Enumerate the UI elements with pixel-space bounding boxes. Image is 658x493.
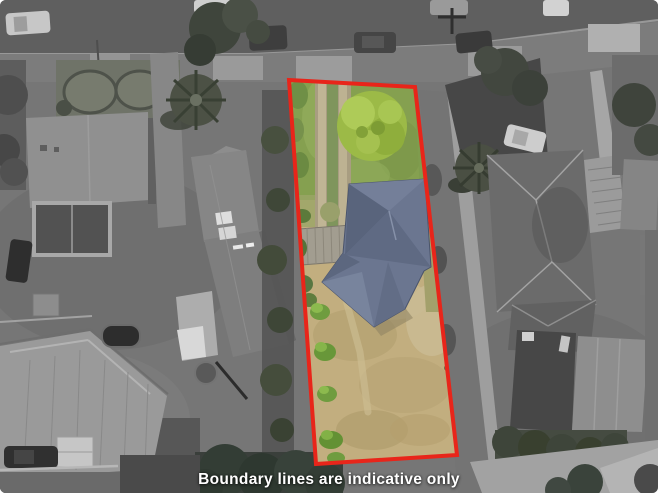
water-tank [195, 362, 217, 384]
neighbor-house-bottom-left-part [14, 450, 34, 464]
bottom-yard [0, 472, 140, 493]
right-driveway-strip-part [512, 70, 548, 106]
bottom-shadow [120, 455, 200, 493]
street-trees-part [246, 20, 270, 44]
right-bottom-block-part [645, 230, 658, 440]
backyard-bushes-part [311, 303, 323, 313]
vegetation-strip-left-part [270, 418, 294, 442]
neighbor-house-top-left-part [54, 147, 59, 152]
parked-cars-part [362, 36, 384, 48]
subject-property-part [359, 357, 451, 413]
front-tree [337, 91, 407, 161]
backyard-bushes-part [315, 342, 327, 352]
shed [33, 294, 59, 316]
front-tree-part [341, 96, 375, 130]
neighbor-house-right-part [532, 187, 588, 263]
palm-tree-right-part [474, 163, 484, 173]
right-bottom-block-part [522, 332, 534, 341]
left-edge-yard-part [0, 158, 28, 186]
skylight [218, 226, 237, 240]
boundary-disclaimer-text: Boundary lines are indicative only [198, 471, 460, 489]
carport-roof [588, 24, 640, 52]
neighbor-house-top-left-part [56, 100, 72, 116]
right-driveway-strip-part [474, 46, 502, 74]
garage-roof [620, 159, 658, 231]
driveway-tracks [315, 78, 351, 232]
vegetation-strip-left [257, 90, 294, 460]
front-tree-part [356, 126, 368, 138]
car-white [543, 0, 569, 16]
skylight [215, 211, 233, 225]
backyard-bushes-part [319, 386, 329, 394]
vegetation-strip-left-part [266, 188, 290, 212]
street-trees-part [184, 34, 216, 66]
road-top-part [296, 56, 352, 82]
subject-property-part [390, 414, 450, 446]
aerial-photo: Boundary lines are indicative only [0, 0, 658, 493]
neighbor-house-right-part [612, 83, 656, 127]
front-tree-part [371, 121, 385, 135]
neighbor-house-left-middle-part [177, 326, 206, 360]
scene-svg [0, 0, 658, 493]
road-top-part [213, 56, 263, 80]
light-roof [572, 336, 648, 432]
vegetation-strip-left-part [261, 126, 289, 154]
vegetation-strip-left-part [260, 364, 292, 396]
trampoline [102, 325, 140, 347]
car-white [5, 10, 50, 35]
parked-cars-part [14, 16, 28, 32]
neighbor-house-top-left-part [40, 145, 47, 151]
vegetation-strip-left-part [267, 307, 293, 333]
front-tree-part [378, 100, 402, 124]
car-gray [430, 0, 468, 15]
backyard-bushes-part [321, 430, 333, 440]
palm-tree-left-part [190, 94, 202, 106]
vegetation-strip-left-part [257, 245, 287, 275]
driveway-tracks-part [320, 202, 340, 222]
